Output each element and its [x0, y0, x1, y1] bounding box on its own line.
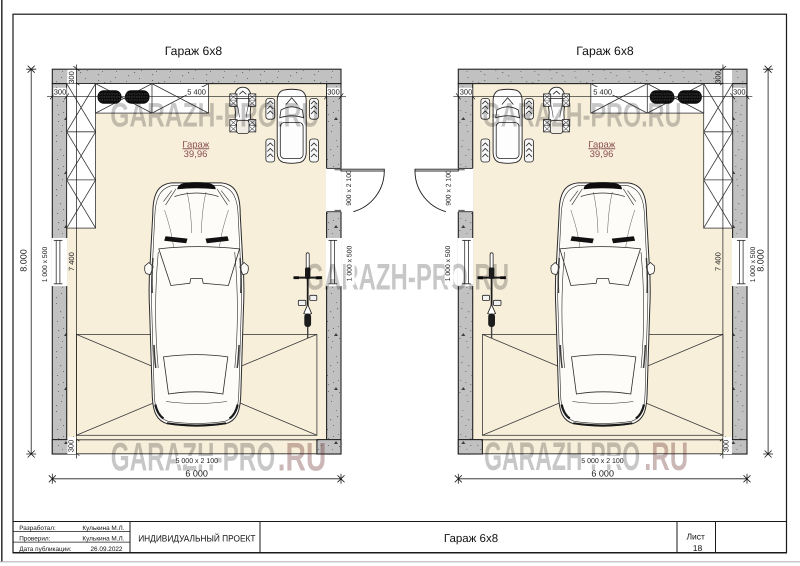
svg-text:Гараж 6х8: Гараж 6х8 [165, 44, 223, 58]
svg-text:Кулькина М.Л.: Кулькина М.Л. [82, 525, 124, 532]
svg-text:300: 300 [460, 87, 473, 96]
svg-text:8.000: 8.000 [19, 249, 29, 272]
svg-text:7 400: 7 400 [67, 252, 76, 271]
svg-text:Гараж 6х8: Гараж 6х8 [444, 533, 498, 545]
svg-text:300: 300 [66, 440, 75, 453]
svg-text:ИНДИВИДУАЛЬНЫЙ ПРОЕКТ: ИНДИВИДУАЛЬНЫЙ ПРОЕКТ [138, 533, 256, 544]
svg-text:5 000 x 2 100: 5 000 x 2 100 [176, 458, 219, 465]
svg-text:5 000 x 2 100: 5 000 x 2 100 [581, 458, 624, 465]
svg-text:.RU: .RU [644, 435, 688, 479]
svg-text:Лист: Лист [686, 532, 705, 542]
svg-text:1 000 x 500: 1 000 x 500 [42, 247, 49, 283]
svg-text:300: 300 [733, 87, 746, 96]
svg-text:300: 300 [714, 71, 723, 84]
svg-text:300: 300 [327, 87, 340, 96]
svg-text:300: 300 [67, 71, 76, 84]
svg-text:GARAZH-PRO.RU: GARAZH-PRO.RU [483, 96, 682, 134]
svg-text:Кулькина М.Л.: Кулькина М.Л. [82, 535, 124, 542]
svg-text:8.000: 8.000 [756, 249, 766, 272]
svg-text:Разработал:: Разработал: [19, 525, 56, 532]
svg-text:300: 300 [54, 87, 67, 96]
svg-text:Проверил:: Проверил: [19, 535, 50, 542]
svg-text:39,96: 39,96 [184, 149, 208, 160]
svg-text:900 x 2 100: 900 x 2 100 [346, 170, 353, 206]
svg-text:Гараж 6х8: Гараж 6х8 [576, 44, 634, 58]
svg-text:GARAZH-PRO.RU: GARAZH-PRO.RU [305, 257, 509, 298]
svg-text:.RU: .RU [278, 436, 327, 480]
svg-text:39,96: 39,96 [590, 149, 614, 160]
svg-text:26.09.2022: 26.09.2022 [91, 546, 123, 553]
svg-text:GARAZH-PRO.RU: GARAZH-PRO.RU [110, 96, 319, 134]
svg-text:300: 300 [722, 440, 731, 453]
svg-text:5 400: 5 400 [187, 87, 206, 96]
svg-text:5 400: 5 400 [593, 87, 612, 96]
svg-text:1 000 x 500: 1 000 x 500 [445, 246, 452, 282]
svg-text:6 000: 6 000 [185, 468, 208, 478]
svg-text:6 000: 6 000 [591, 468, 614, 478]
svg-text:7 400: 7 400 [714, 252, 723, 271]
svg-text:Дата публикации:: Дата публикации: [19, 546, 72, 553]
svg-text:1 000 x 500: 1 000 x 500 [347, 246, 354, 282]
svg-text:900 x 2 100: 900 x 2 100 [446, 170, 453, 206]
svg-text:18: 18 [693, 543, 703, 553]
